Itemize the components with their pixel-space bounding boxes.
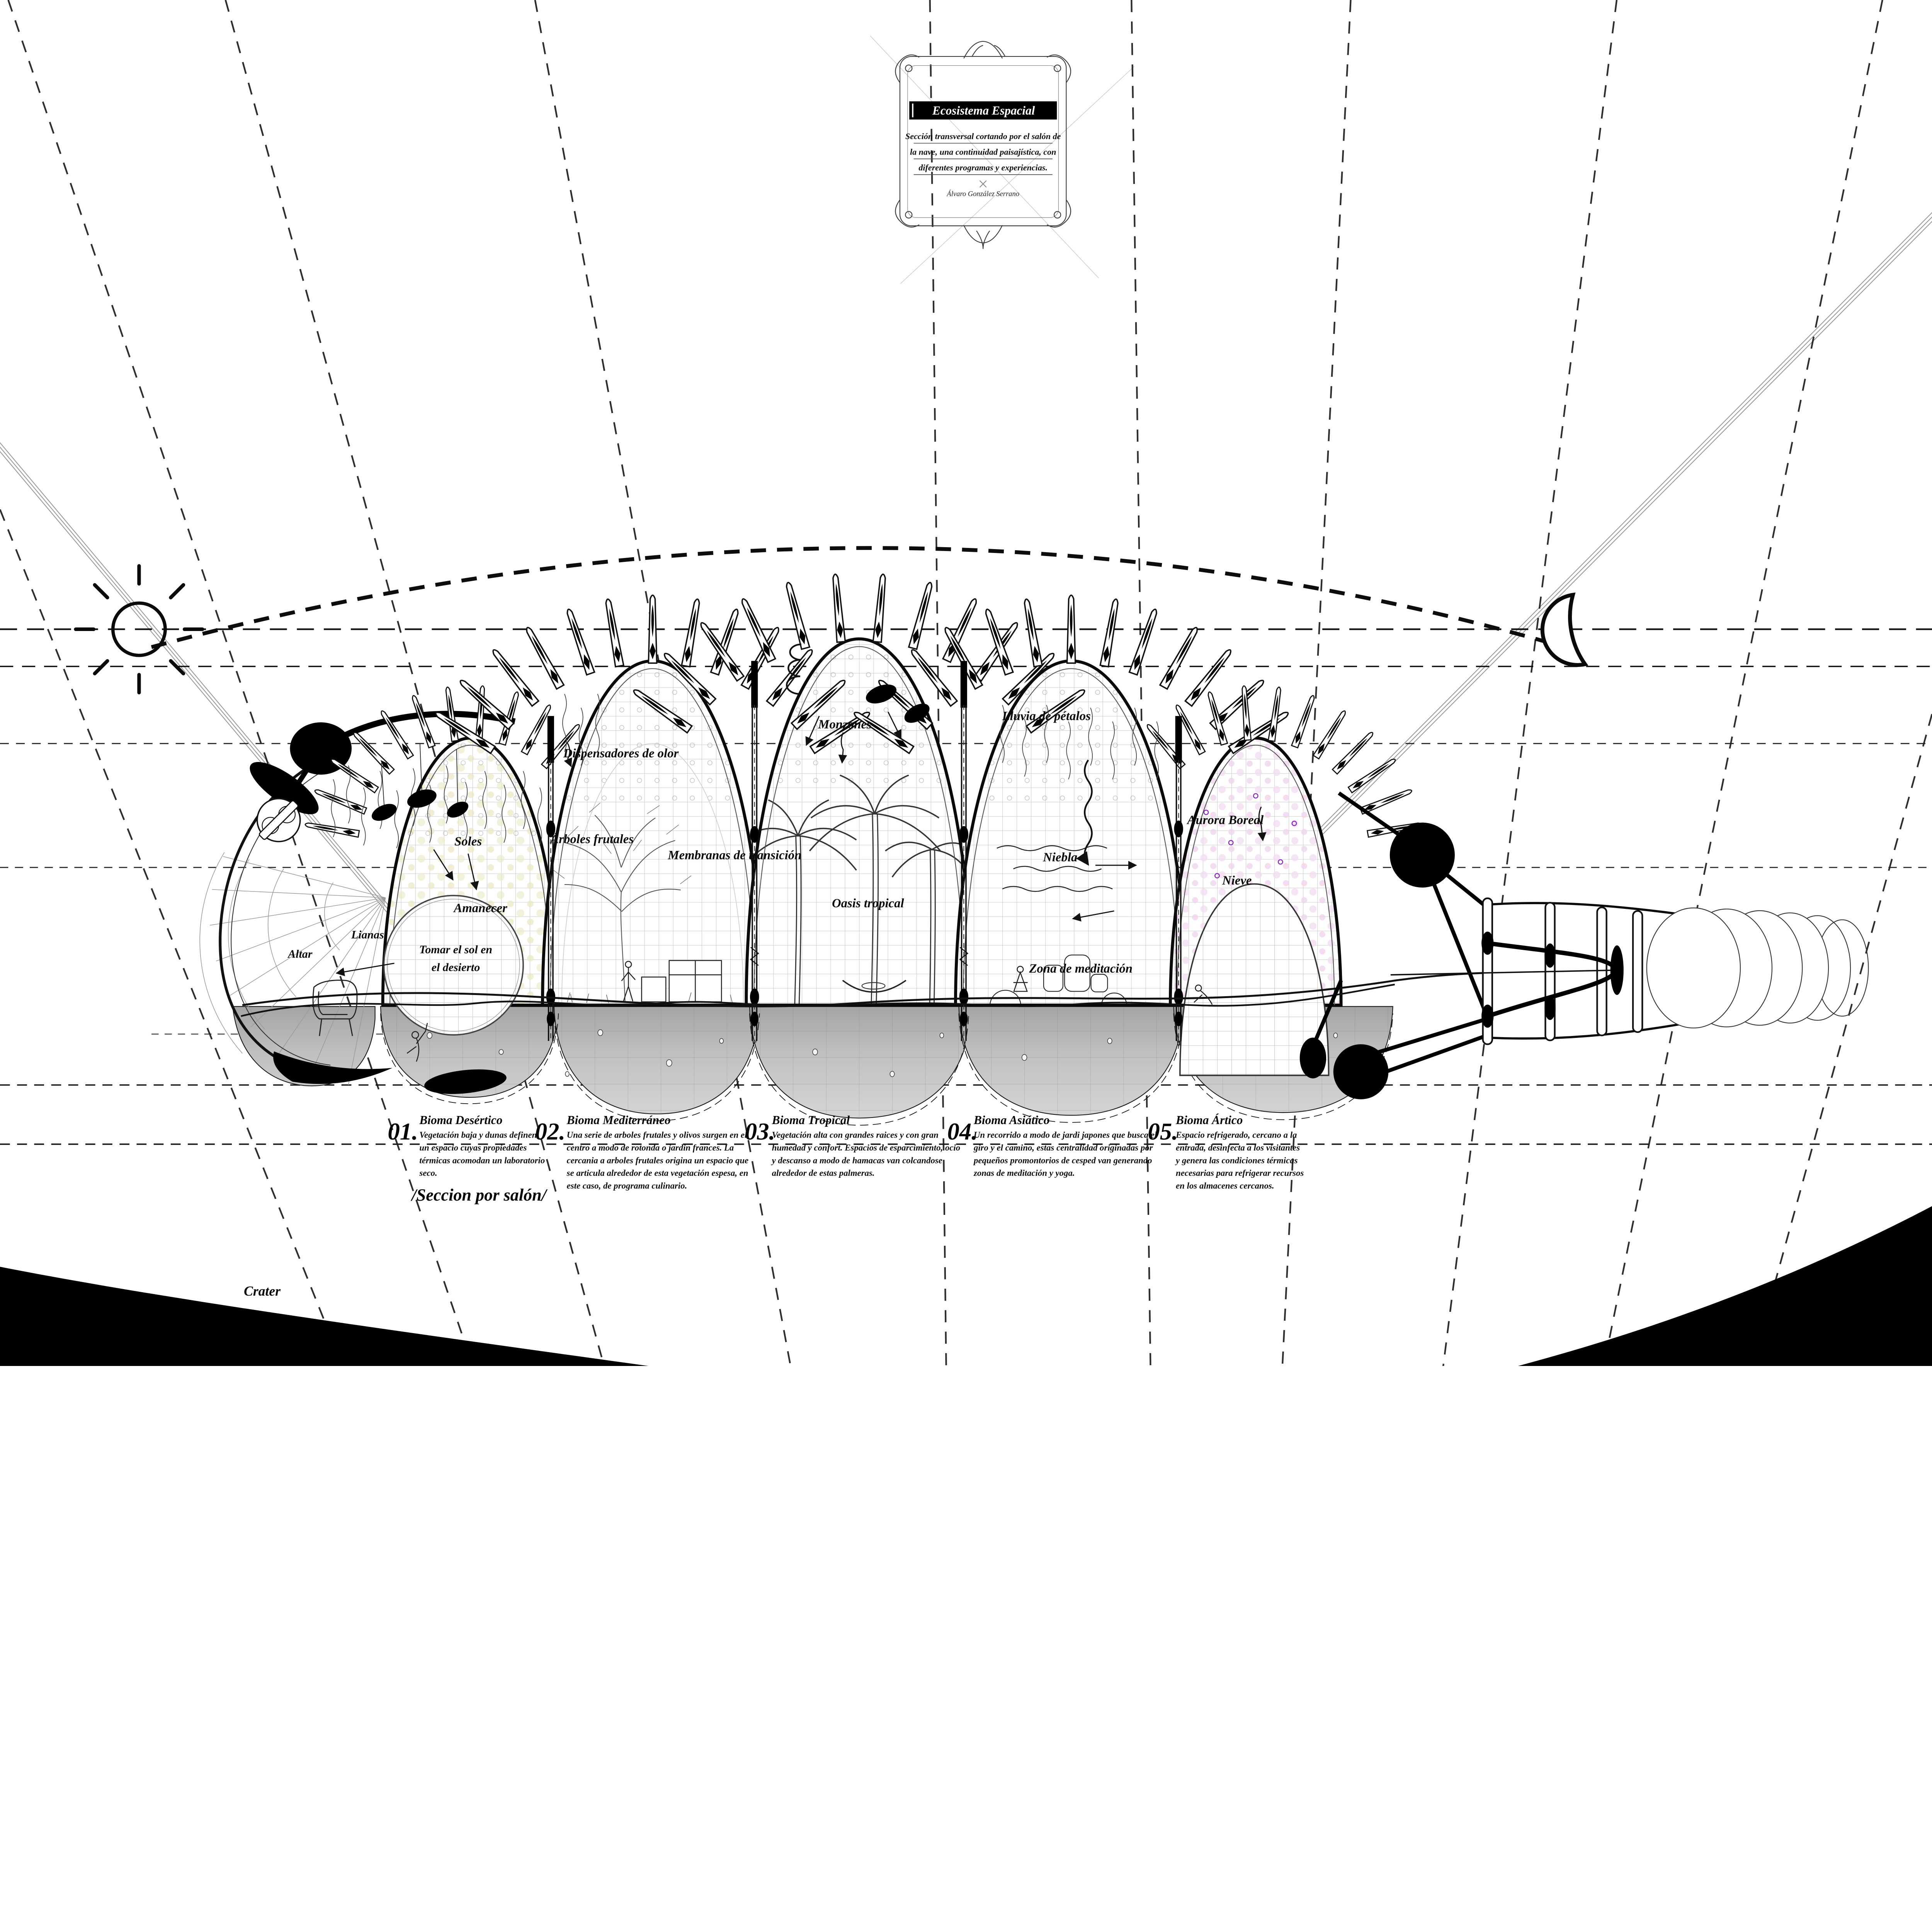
legend-number: 05. xyxy=(1148,1118,1178,1145)
legend-heading: Bioma Desértico xyxy=(419,1113,502,1127)
legend-line: seco. xyxy=(419,1168,437,1178)
legend-line: cercania a arboles frutales origina un e… xyxy=(567,1155,749,1165)
legend-heading: Bioma Mediterráneo xyxy=(566,1113,671,1127)
legend-heading: Bioma Asiático xyxy=(973,1113,1049,1127)
label-soles: Soles xyxy=(454,835,482,849)
legend-number: 01. xyxy=(388,1118,418,1145)
label-aurora: Aurora Boreal xyxy=(1187,813,1264,827)
label-tomar-2: el desierto xyxy=(432,961,480,974)
ecosystem-section-sheet: Soles Amanecer Lianas Altar Tomar el sol… xyxy=(0,0,1932,1366)
legend-line: Vegetación baja y dunas definen xyxy=(419,1130,537,1140)
legend-line: este caso, de programa culinario. xyxy=(567,1181,687,1191)
label-membranas: Membranas de transición xyxy=(667,848,801,862)
label-lluvia: Lluvia de pétalos xyxy=(1002,709,1090,723)
legend-number: 02. xyxy=(535,1118,565,1145)
label-monzones: Monzones xyxy=(818,718,871,731)
legend-line: y descanso a modo de hamacas van colcand… xyxy=(771,1155,942,1165)
legend-line: giro y el camino, estas centralidad orig… xyxy=(973,1143,1153,1152)
subtitle-line-1: Sección transversal cortando por el saló… xyxy=(905,131,1061,141)
label-altar: Altar xyxy=(287,948,313,961)
legend-number: 03. xyxy=(745,1118,775,1145)
legend-line: alrededor de estas palmeras. xyxy=(772,1168,875,1178)
label-niebla: Niebla xyxy=(1043,850,1077,864)
author-signature: Álvaro González Serrano xyxy=(946,189,1019,198)
label-crater: Crater xyxy=(244,1283,281,1299)
legend-line: humedad y confort. Espacios de esparcimi… xyxy=(772,1143,961,1152)
label-zona: Zona de meditación xyxy=(1029,962,1133,976)
legend-line: Una serie de arboles frutales y olivos s… xyxy=(567,1130,747,1140)
label-nieve: Nieve xyxy=(1222,874,1252,888)
legend-line: se articula alrededor de esta vegetación… xyxy=(566,1168,748,1178)
section-note: /Seccion por salón/ xyxy=(410,1186,548,1204)
label-amanecer: Amanecer xyxy=(453,901,507,915)
legend-line: zonas de meditación y yoga. xyxy=(973,1168,1075,1178)
legend-line: Un recorrido a modo de jardi japones que… xyxy=(974,1130,1157,1140)
legend-line: centro a modo de rotonda o jardin france… xyxy=(567,1143,734,1152)
legend-line: en los almacenes cercanos. xyxy=(1176,1181,1274,1191)
sheet-title: Ecosistema Espacial xyxy=(932,104,1035,117)
legend-line: pequeños promontorios de cesped van gene… xyxy=(973,1155,1152,1165)
legend-line: necesarias para refrigerar recursos xyxy=(1176,1168,1304,1178)
legend-line: térmicas acomodan un laboratorio xyxy=(419,1155,545,1165)
legend-line: Vegetación alta con grandes raices y con… xyxy=(772,1130,939,1140)
subtitle-line-3: diferentes programas y experiencias. xyxy=(918,163,1048,172)
label-dispensadores: Dispensadores de olor xyxy=(563,747,679,760)
legend-line: entrada, desinfecta a los visitantes xyxy=(1176,1143,1300,1152)
subtitle-line-2: la nave, una continuidad paisajística, c… xyxy=(910,147,1056,157)
legend-number: 04. xyxy=(947,1118,978,1145)
legend-line: Espacio refrigerado, cercano a la xyxy=(1175,1130,1297,1140)
label-lianas: Lianas xyxy=(351,929,384,941)
legend-heading: Bioma Tropical xyxy=(772,1113,850,1127)
label-arboles: Árboles frutales xyxy=(549,832,634,846)
label-tomar-1: Tomar el sol en xyxy=(419,943,492,956)
vent-fan-icon xyxy=(257,799,300,842)
legend-line: un espacio cuyas propiedades xyxy=(419,1143,527,1152)
legend-line: y genera las condiciones térmicas xyxy=(1175,1155,1298,1165)
legend-heading: Bioma Ártico xyxy=(1175,1113,1243,1127)
label-oasis: Oasis tropical xyxy=(832,896,904,910)
